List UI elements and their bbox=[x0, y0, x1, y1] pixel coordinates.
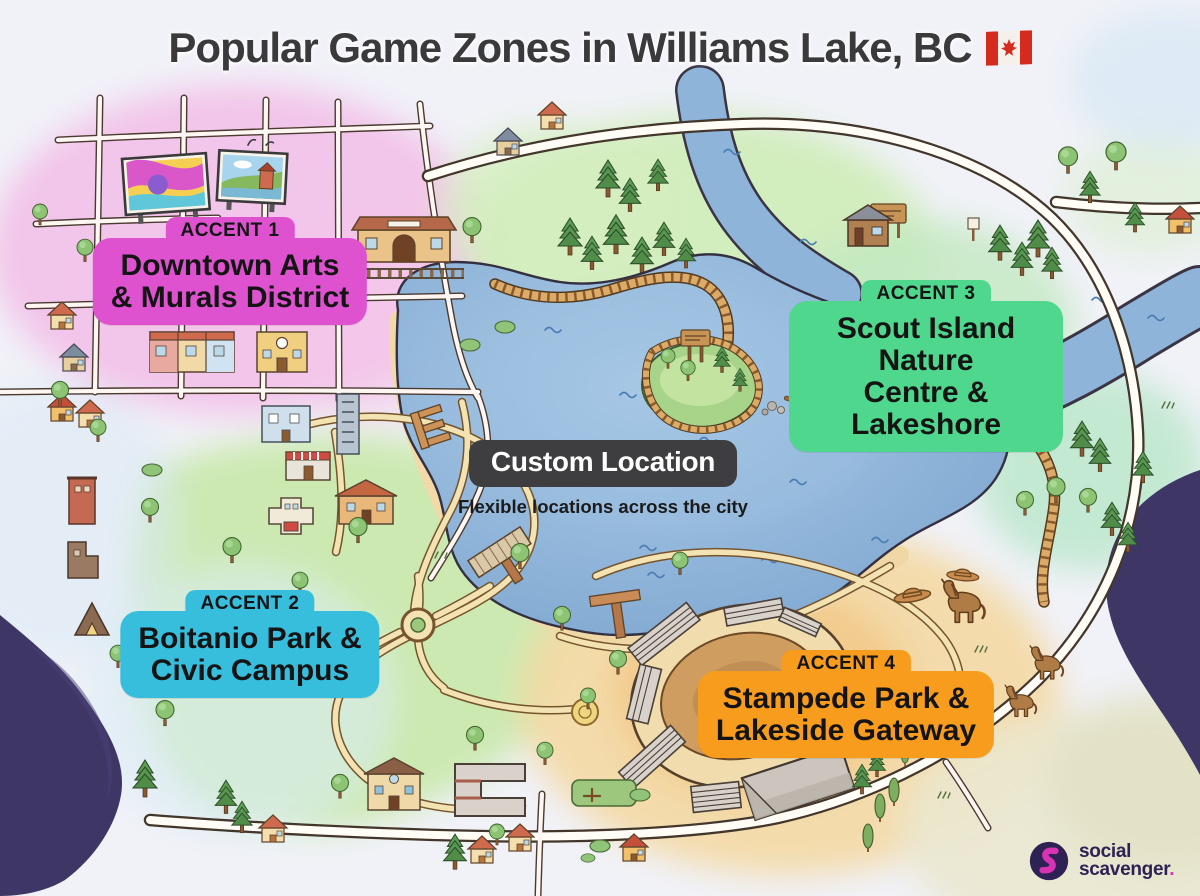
custom-location-label: Custom Location Flexible locations acros… bbox=[458, 440, 748, 518]
awning-shop-icon bbox=[286, 452, 330, 480]
bush-icon bbox=[142, 464, 162, 476]
round-pen-icon bbox=[572, 699, 598, 725]
bush-icon bbox=[581, 854, 595, 862]
bush-icon bbox=[495, 321, 515, 333]
zone-name-line1: Boitanio Park & bbox=[138, 622, 361, 655]
zone-badge-boitanio: ACCENT 2 Boitanio Park & Civic Campus bbox=[120, 582, 379, 698]
zone-name-line1: Stampede Park & bbox=[723, 682, 970, 715]
zone-tag: ACCENT 1 bbox=[165, 217, 294, 246]
zone-tag: ACCENT 4 bbox=[781, 650, 910, 679]
zone-tag: ACCENT 3 bbox=[861, 280, 990, 309]
bush-icon bbox=[630, 789, 650, 801]
zone-name-line1: Scout Island Nature bbox=[837, 312, 1015, 377]
logo-word-scavenger: scavenger bbox=[1079, 859, 1169, 880]
custom-location-subtitle: Flexible locations across the city bbox=[458, 496, 748, 518]
zone-tag: ACCENT 2 bbox=[185, 590, 314, 619]
tower-building-icon bbox=[337, 394, 359, 454]
logo-dot: . bbox=[1169, 859, 1174, 880]
zone-name-line1: Downtown Arts bbox=[121, 249, 340, 282]
zone-name: Downtown Arts & Murals District bbox=[93, 238, 367, 325]
roundabout bbox=[402, 609, 434, 641]
page-title: Popular Game Zones in Williams Lake, BC bbox=[0, 24, 1200, 72]
zone-name: Stampede Park & Lakeside Gateway bbox=[698, 671, 994, 758]
zone-name-line2: Civic Campus bbox=[151, 654, 349, 687]
storefront-row-icon bbox=[150, 332, 234, 372]
blue-block-icon bbox=[262, 406, 310, 442]
zone-name-line2: Centre & Lakeshore bbox=[851, 376, 1001, 441]
zone-name-line2: Lakeside Gateway bbox=[716, 714, 976, 747]
zone-badge-downtown: ACCENT 1 Downtown Arts & Murals District bbox=[93, 209, 367, 325]
zone-badge-scout-island: ACCENT 3 Scout Island Nature Centre & La… bbox=[789, 272, 1063, 452]
bush-icon bbox=[590, 840, 610, 852]
clock-building-icon bbox=[257, 332, 307, 372]
zone-name-line2: & Murals District bbox=[111, 281, 349, 314]
canada-flag-icon bbox=[986, 30, 1032, 66]
logo-wordmark: social scavenger. bbox=[1079, 843, 1174, 879]
zone-name: Boitanio Park & Civic Campus bbox=[120, 611, 379, 698]
logo-mark-icon bbox=[1028, 840, 1070, 882]
zone-badge-stampede: ACCENT 4 Stampede Park & Lakeside Gatewa… bbox=[698, 642, 994, 758]
bush-icon bbox=[460, 339, 480, 351]
social-scavenger-logo: social scavenger. bbox=[1028, 840, 1174, 882]
red-building-icon bbox=[67, 478, 97, 524]
zone-name: Scout Island Nature Centre & Lakeshore bbox=[789, 301, 1063, 452]
picnic-green-icon bbox=[572, 780, 636, 806]
title-text: Popular Game Zones in Williams Lake, BC bbox=[168, 24, 971, 72]
train-station-icon bbox=[352, 217, 456, 262]
map-poster: Popular Game Zones in Williams Lake, BC … bbox=[0, 0, 1200, 896]
custom-location-box: Custom Location bbox=[469, 440, 737, 487]
